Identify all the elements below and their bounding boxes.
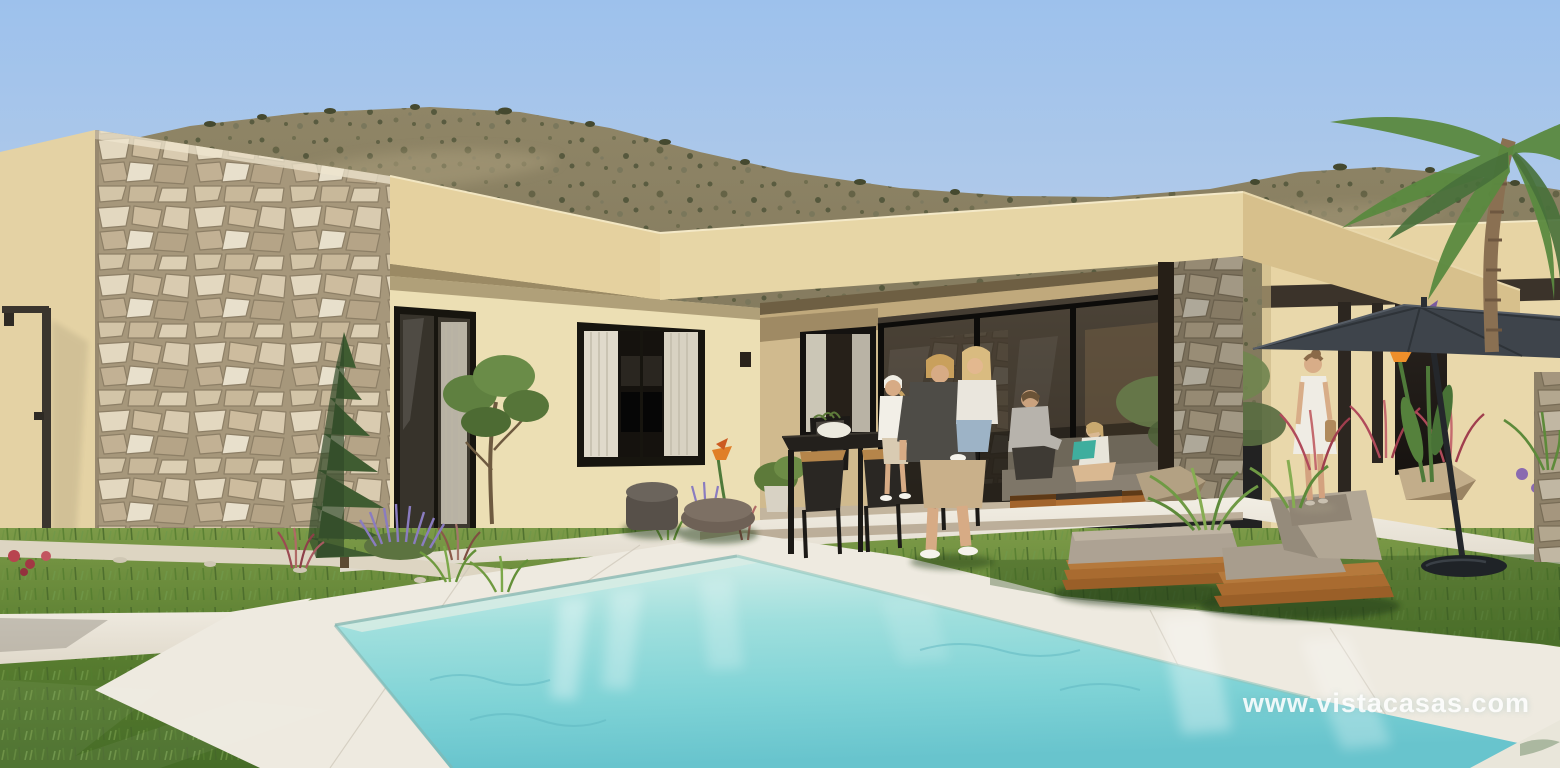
wall-sconce: [740, 352, 751, 367]
sun-lounger-flat: [1054, 524, 1250, 607]
villa-render: www.vistacasas.com: [0, 0, 1560, 768]
curtained-window: [577, 322, 705, 467]
pouf-flat: [678, 498, 758, 544]
scene-canvas: [0, 0, 1560, 768]
parasol-base: [1421, 555, 1507, 577]
pouf: [622, 482, 682, 539]
watermark: www.vistacasas.com: [1243, 688, 1530, 719]
teal-book: [1072, 440, 1096, 460]
